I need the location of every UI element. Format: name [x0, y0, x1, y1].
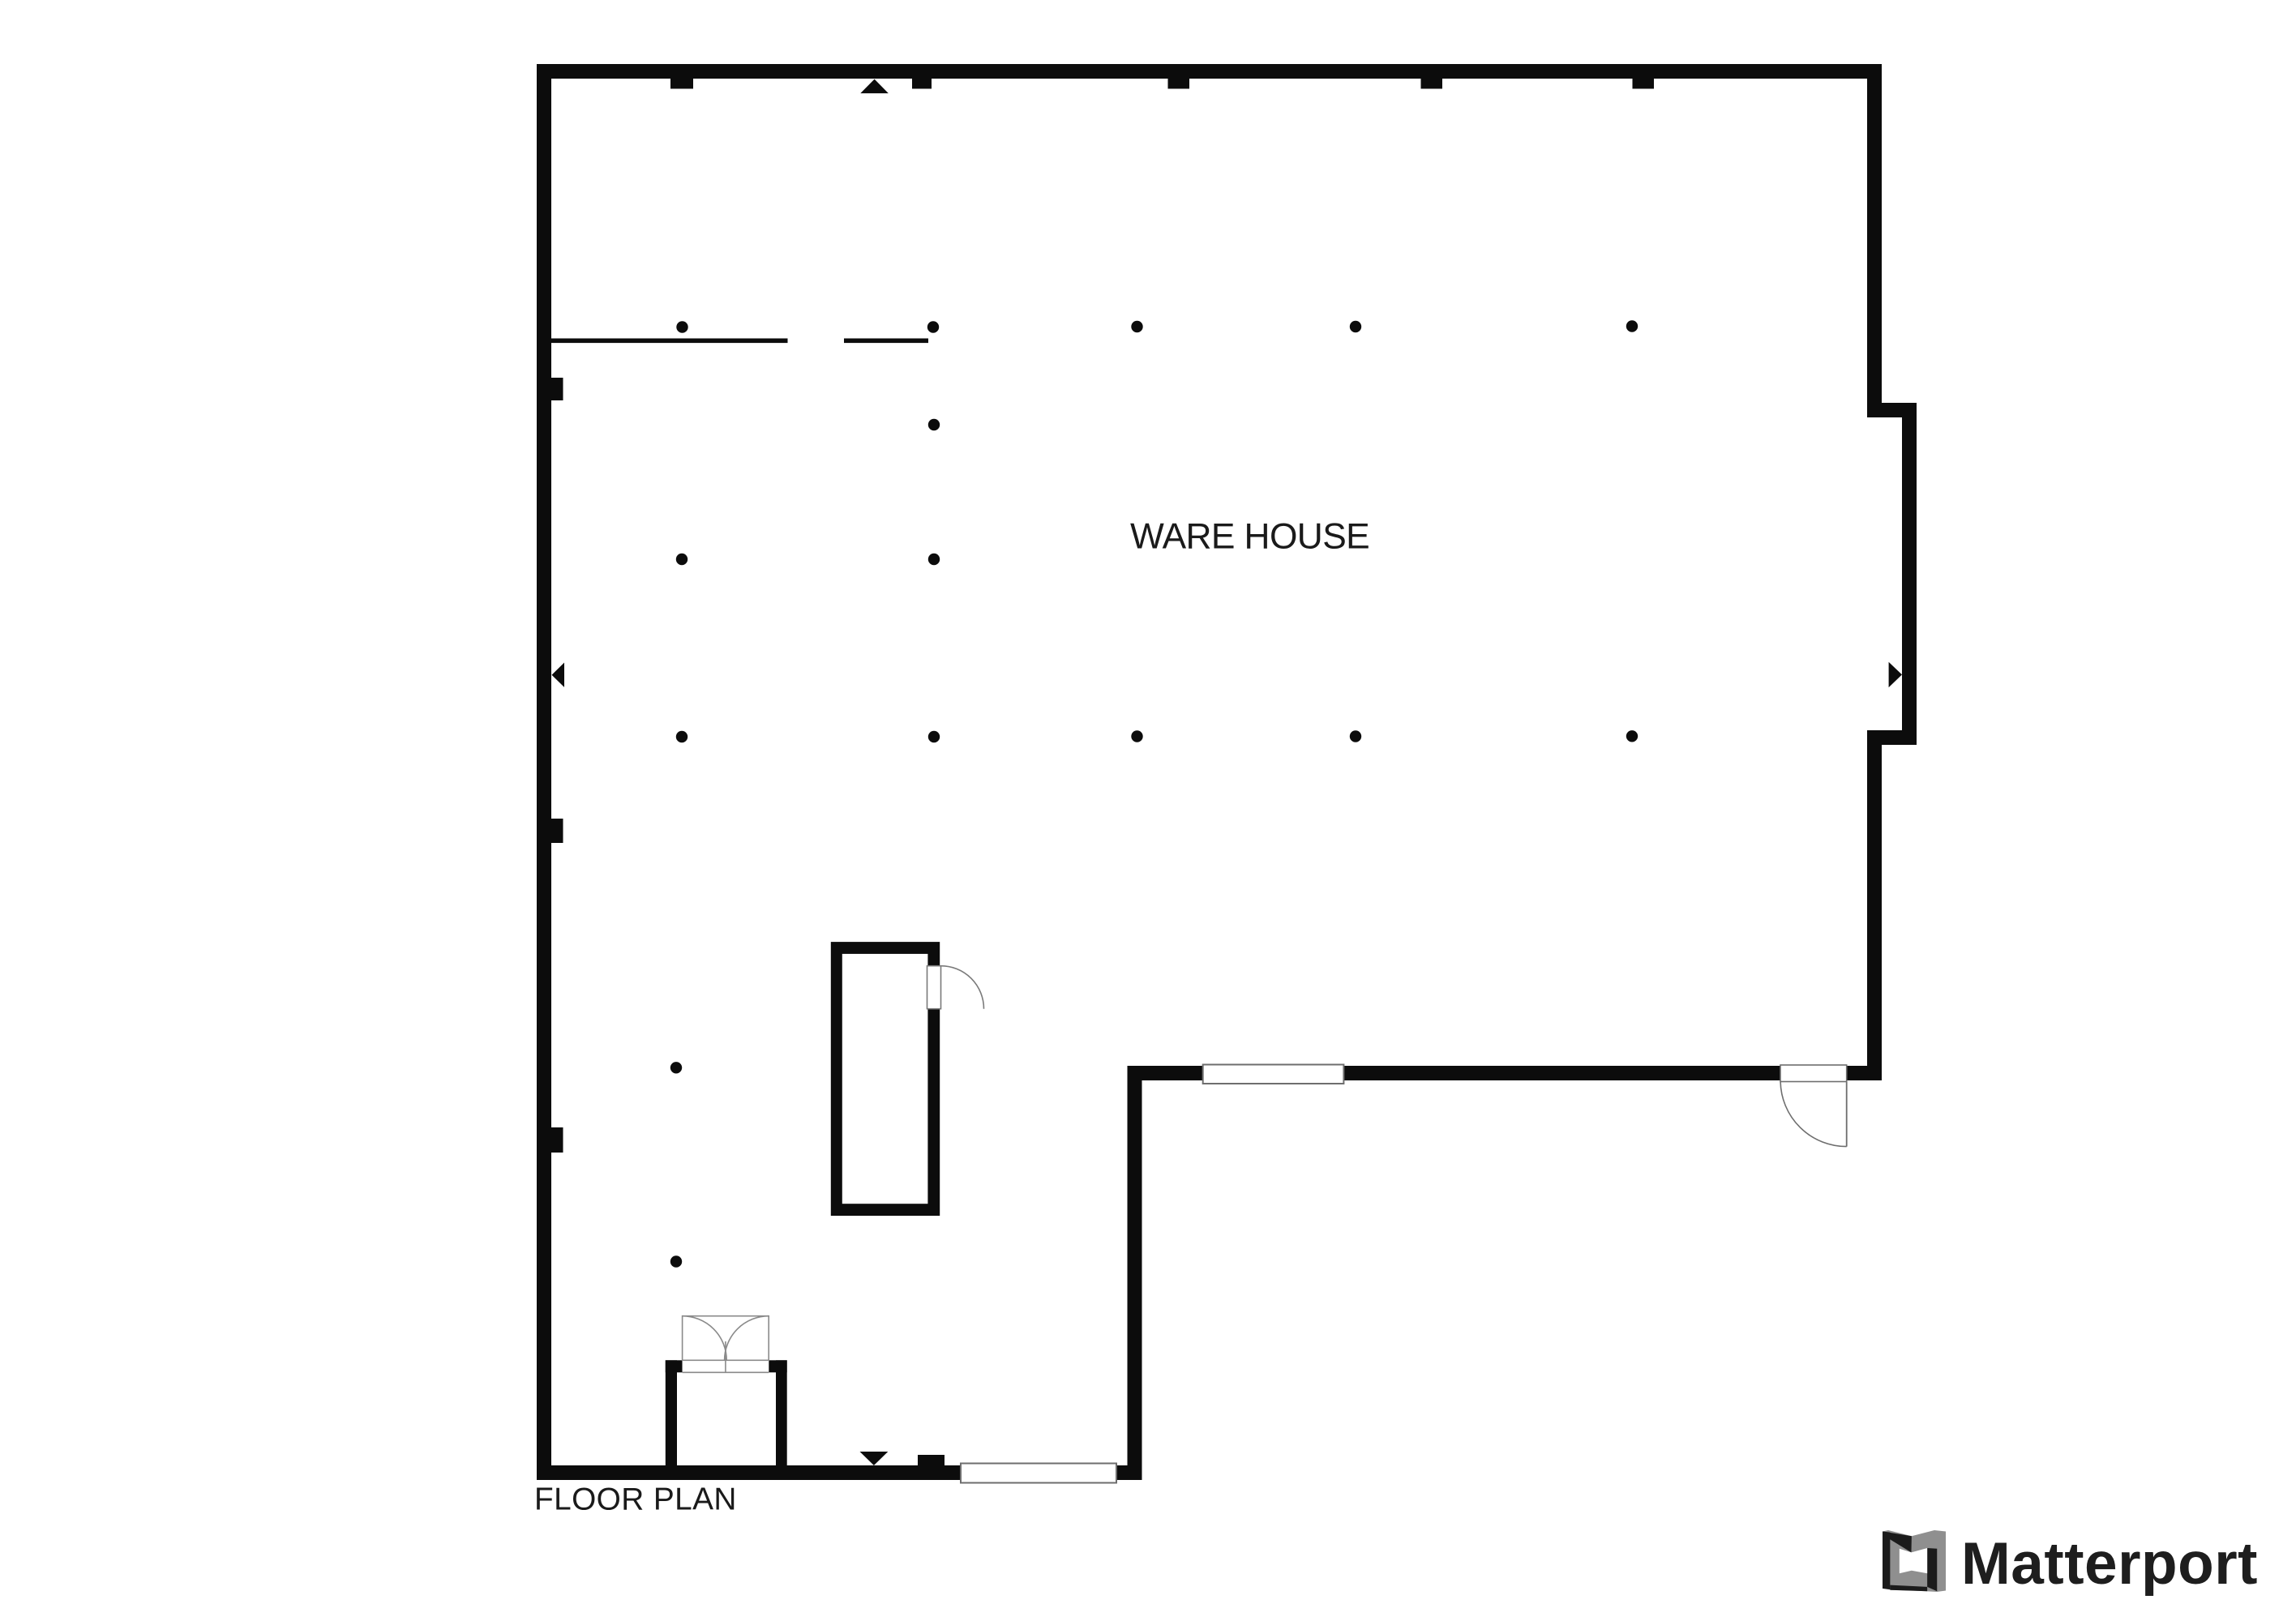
svg-text:FLOOR PLAN: FLOOR PLAN	[534, 1482, 737, 1517]
svg-text:Matterport: Matterport	[1961, 1531, 2258, 1597]
svg-text:WARE HOUSE: WARE HOUSE	[1130, 517, 1369, 557]
